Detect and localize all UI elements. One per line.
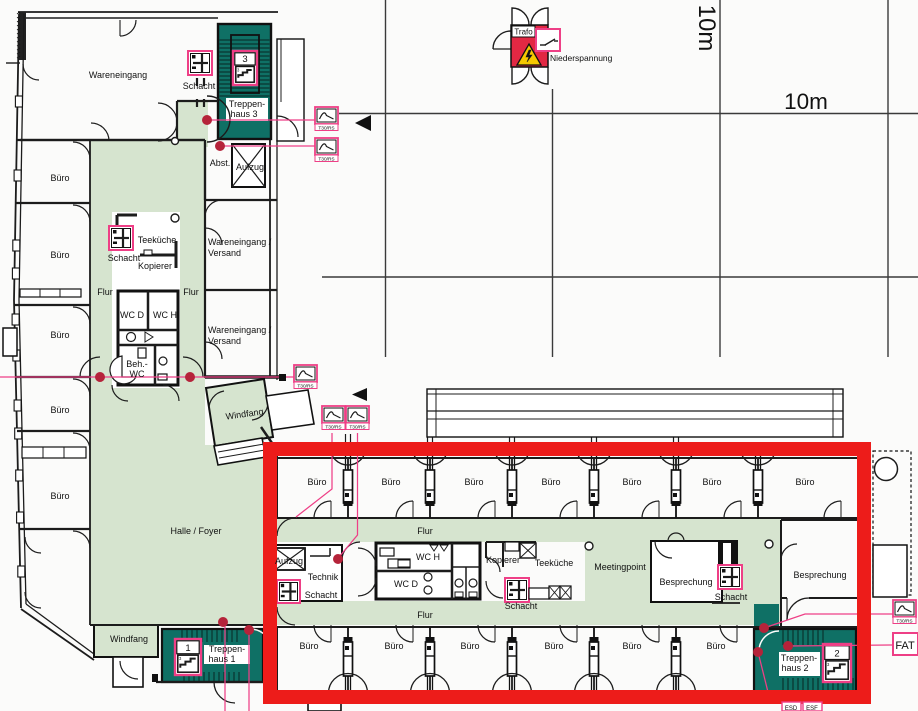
svg-text:Büro: Büro xyxy=(706,641,725,651)
svg-text:Büro: Büro xyxy=(622,477,641,487)
svg-text:Versand: Versand xyxy=(208,336,241,346)
svg-text:WC H: WC H xyxy=(153,310,177,320)
svg-text:Wareneingang: Wareneingang xyxy=(89,70,147,80)
svg-text:haus 3: haus 3 xyxy=(230,109,257,119)
svg-text:2: 2 xyxy=(834,649,839,660)
svg-text:Büro: Büro xyxy=(50,173,69,183)
svg-text:3: 3 xyxy=(242,54,247,65)
svg-text:Büro: Büro xyxy=(307,477,326,487)
svg-text:T30/RS: T30/RS xyxy=(325,424,341,430)
svg-text:FAT: FAT xyxy=(895,640,915,652)
svg-text:Büro: Büro xyxy=(384,641,403,651)
svg-text:Büro: Büro xyxy=(622,641,641,651)
svg-text:Büro: Büro xyxy=(299,641,318,651)
svg-text:Halle / Foyer: Halle / Foyer xyxy=(170,526,221,536)
svg-text:Beh.-: Beh.- xyxy=(126,359,148,369)
svg-text:Büro: Büro xyxy=(50,330,69,340)
svg-text:WC D: WC D xyxy=(394,579,418,589)
svg-text:10m: 10m xyxy=(693,5,720,52)
svg-text:T30/RS: T30/RS xyxy=(297,383,313,389)
svg-text:Windfang: Windfang xyxy=(110,634,148,644)
svg-text:Büro: Büro xyxy=(50,250,69,260)
svg-text:Meetingpoint: Meetingpoint xyxy=(594,562,646,572)
svg-text:Büro: Büro xyxy=(381,477,400,487)
svg-text:Büro: Büro xyxy=(464,477,483,487)
svg-text:Teeküche: Teeküche xyxy=(535,558,574,568)
svg-text:Schacht: Schacht xyxy=(305,590,338,600)
svg-text:Büro: Büro xyxy=(702,477,721,487)
svg-text:Flur: Flur xyxy=(417,526,433,536)
svg-text:Niederspannung: Niederspannung xyxy=(550,53,613,63)
svg-text:ESF: ESF xyxy=(806,706,818,711)
svg-text:Büro: Büro xyxy=(50,491,69,501)
svg-text:Büro: Büro xyxy=(544,641,563,651)
svg-text:ESD: ESD xyxy=(785,706,798,711)
svg-text:Trafo: Trafo xyxy=(514,28,533,37)
svg-text:Treppen-: Treppen- xyxy=(229,99,265,109)
svg-text:Schacht: Schacht xyxy=(715,592,748,602)
svg-text:Aufzug: Aufzug xyxy=(236,162,264,172)
svg-text:10m: 10m xyxy=(784,89,828,114)
svg-text:T30/RS: T30/RS xyxy=(318,156,334,162)
svg-text:Flur: Flur xyxy=(183,287,199,297)
svg-text:Schacht: Schacht xyxy=(183,81,216,91)
svg-text:Abst.: Abst. xyxy=(210,158,231,168)
svg-text:Büro: Büro xyxy=(541,477,560,487)
svg-text:WC: WC xyxy=(130,369,145,379)
svg-text:Besprechung: Besprechung xyxy=(793,570,846,580)
svg-text:WC D: WC D xyxy=(120,310,144,320)
svg-text:Flur: Flur xyxy=(97,287,113,297)
svg-text:Teeküche: Teeküche xyxy=(138,235,177,245)
svg-text:Büro: Büro xyxy=(460,641,479,651)
svg-text:T30/RS: T30/RS xyxy=(896,618,912,624)
svg-text:Besprechung: Besprechung xyxy=(659,577,712,587)
svg-text:T30/RS: T30/RS xyxy=(349,424,365,430)
svg-text:Versand: Versand xyxy=(208,248,241,258)
svg-text:Wareneingang /: Wareneingang / xyxy=(208,325,272,335)
svg-text:WC H: WC H xyxy=(416,552,440,562)
svg-text:haus 1: haus 1 xyxy=(208,654,235,664)
svg-text:Büro: Büro xyxy=(795,477,814,487)
svg-text:Kopierer: Kopierer xyxy=(138,261,172,271)
svg-text:Treppen-: Treppen- xyxy=(209,644,245,654)
svg-text:Wareneingang /: Wareneingang / xyxy=(208,237,272,247)
svg-text:Büro: Büro xyxy=(50,405,69,415)
svg-text:Schacht: Schacht xyxy=(505,601,538,611)
svg-text:Schacht: Schacht xyxy=(108,253,141,263)
svg-text:haus 2: haus 2 xyxy=(781,663,808,673)
svg-text:Flur: Flur xyxy=(417,610,433,620)
svg-text:1: 1 xyxy=(185,643,190,654)
svg-text:Kopierer: Kopierer xyxy=(486,555,520,565)
svg-text:Treppen-: Treppen- xyxy=(781,653,817,663)
svg-text:T30/RS: T30/RS xyxy=(318,125,334,131)
svg-text:Technik: Technik xyxy=(308,572,339,582)
svg-text:Aufzug: Aufzug xyxy=(275,556,303,566)
